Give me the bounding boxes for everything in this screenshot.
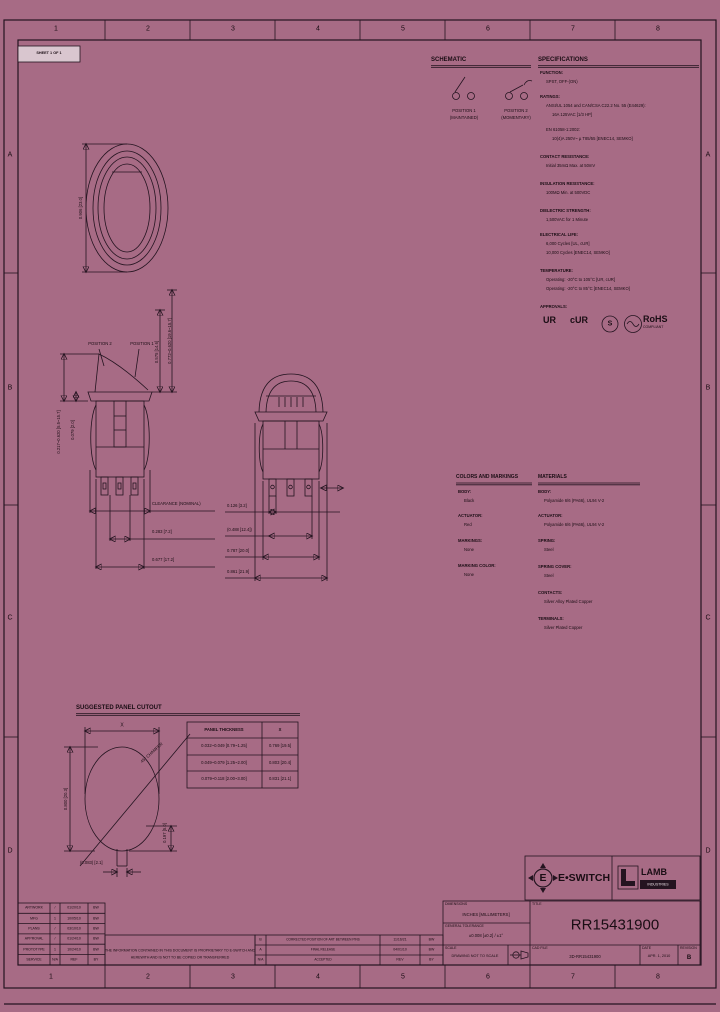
footer-cell: PROTOTYPE — [23, 948, 45, 952]
titleblock-header: SCALE — [445, 947, 456, 951]
titleblock-header: GENERAL TOLERANCE — [445, 925, 484, 929]
grid-col-label: 3 — [231, 974, 235, 981]
titleblock-header: REVISION — [680, 947, 697, 951]
spec-line: Operating: -20°C to 105°C [UR, cUR] — [546, 278, 615, 282]
rev-cell: BW — [429, 948, 435, 952]
grid-col-label: 8 — [656, 974, 660, 981]
cutout-table-cell: 0.079~0.118 [2.00~3.00] — [201, 777, 246, 781]
eswitch-logo-e: E — [539, 873, 546, 884]
titleblock-value: DRAWING NOT TO SCALE — [452, 955, 499, 959]
footer-cell: MFG — [30, 917, 38, 921]
lamb-logo-text: LAMB — [641, 868, 667, 877]
materials-value: Silver Alloy Plated Copper — [544, 600, 592, 604]
titleblock-value: APR. 1, 2010 — [648, 955, 671, 959]
footer-cell: SERVICE — [26, 958, 41, 962]
rev-cell: B — [259, 938, 261, 942]
front-view-drawing — [82, 144, 168, 272]
colors-header: ACTUATOR: — [458, 514, 483, 518]
footer-cell: 10/05/10 — [67, 917, 81, 921]
grid-col-label: 2 — [146, 26, 150, 33]
materials-value: Silver Plated Copper — [544, 626, 582, 630]
rev-cell: FINAL RELEASE — [311, 948, 336, 951]
spec-line: 100MΩ Min. at 500VDC — [546, 191, 590, 195]
colors-title: COLORS AND MARKINGS — [456, 475, 518, 480]
spec-line: 10(4)A 250V~ µ T85/55 [ENEC14, SEMKO] — [552, 137, 633, 141]
grid-row-label: C — [705, 615, 710, 622]
spec-header: TEMPERATURE: — [540, 269, 573, 273]
materials-value: Steel — [544, 548, 554, 552]
revision-value: B — [687, 955, 691, 961]
side-view-2-drawing — [255, 374, 343, 496]
titleblock-header: DATE — [642, 947, 651, 951]
dim-label: CLEARANCE (NOMINAL) — [152, 502, 201, 506]
materials-title: MATERIALS — [538, 475, 567, 480]
spec-header: ELECTRICAL LIFE: — [540, 233, 578, 237]
footer-cell: BW — [93, 917, 99, 921]
rev-cell: CORRECTED POSITION OF ART BETWEEN PINS — [286, 938, 360, 941]
materials-header: CONTACTS: — [538, 591, 562, 595]
spec-header: APPROVALS: — [540, 305, 567, 309]
specs-title: SPECIFICATIONS — [538, 57, 588, 63]
grid-col-label: 6 — [486, 974, 490, 981]
grid-col-label: 2 — [146, 974, 150, 981]
footer-cell: 03/10/10 — [67, 927, 81, 931]
footer-cell: 1 — [54, 917, 56, 921]
titleblock-value: 3D-RR15431900 — [569, 955, 600, 959]
border-frame — [4, 20, 716, 1004]
dim-label: (0.083) [2.1] — [80, 861, 103, 865]
section-title-underlines — [76, 66, 699, 716]
dim-label: 0.217~0.620 [5.5~15.7] — [57, 410, 61, 453]
dim-label: 0.861 [21.9] — [227, 570, 249, 574]
spec-line: SPST, OFF-(ON) — [546, 80, 578, 84]
spec-line: Initial 35mΩ Max. at 50mV — [546, 164, 595, 168]
rev-cell: A — [259, 948, 261, 952]
rev-cell: N/A — [258, 958, 264, 962]
footer-cell: BW — [93, 948, 99, 952]
spec-line: 6,000 Cycles [UL, cUR] — [546, 242, 590, 246]
rev-cell: 04/01/10 — [393, 948, 407, 952]
grid-row-label: D — [705, 848, 710, 855]
footer-cell: N/A — [52, 958, 58, 962]
colors-header: MARKINGS: — [458, 539, 482, 543]
dim-label: 0.575 [14.6] — [155, 341, 159, 363]
footer-cell: BW — [93, 927, 99, 931]
dim-label: 0.283 [7.2] — [152, 530, 172, 534]
rev-cell: BW — [429, 938, 435, 942]
position-2-sub: (MOMENTARY) — [501, 116, 531, 120]
grid-row-label: A — [8, 152, 13, 159]
drawing-linework — [0, 0, 720, 1012]
spec-header: DIELECTRIC STRENGTH: — [540, 209, 591, 213]
spec-line: 10,000 Cycles [ENEC14, SEMKO] — [546, 251, 610, 255]
dim-label: 0.197 [5.0] — [163, 823, 167, 843]
lamb-logo-sub: INDUSTRIES — [647, 883, 668, 887]
spec-header: FUNCTION: — [540, 71, 563, 75]
rev-cell: 11/16/21 — [393, 938, 406, 942]
grid-col-label: 5 — [401, 26, 405, 33]
titleblock-header: CAD FILE — [532, 947, 548, 951]
grid-col-label: 3 — [231, 26, 235, 33]
footer-cell: BW — [93, 937, 99, 941]
eswitch-logo-text: E•SWITCH — [558, 873, 610, 884]
grid-col-label: 7 — [571, 974, 575, 981]
footer-cell: 01/20/10 — [67, 906, 81, 910]
footer-cell: BW — [93, 906, 99, 910]
dim-label: 0.800 [20.3] — [64, 788, 68, 810]
materials-header: ACTUATOR: — [538, 514, 563, 518]
cutout-table-cell: 0.032~0.049 [0.79~1.25] — [201, 744, 247, 748]
footer-cell: / — [55, 906, 56, 910]
side-view-1-drawing — [60, 290, 177, 495]
dim-label: 0.787 [20.0] — [227, 549, 249, 553]
semko-icon: S — [608, 321, 613, 328]
position-1-callout: POSITION 1 — [130, 342, 154, 346]
footer-cell: ARTWORK — [25, 906, 43, 910]
cutout-table-cell: 0.803 [20.4] — [269, 761, 291, 765]
cul-recognized-icon: cUR — [570, 316, 588, 325]
grid-row-label: B — [8, 385, 13, 392]
grid-col-label: 6 — [486, 26, 490, 33]
spec-line: Operating: -20°C to 85°C [ENEC14, SEMKO] — [546, 287, 630, 291]
materials-value: Polyamide 6/6 (PA66), UL94 V-2 — [544, 499, 604, 503]
titleblock-value: ±0.008 [±0.2] / ±1° — [469, 934, 503, 938]
materials-header: TERMINALS: — [538, 617, 564, 621]
proprietary-note: HEREWITH AND IS NOT TO BE COPIED OR TRAN… — [131, 956, 230, 960]
cutout-table-cell: 0.049~0.079 [1.25~2.00] — [201, 761, 247, 765]
position-2-label: POSITION 2 — [504, 109, 528, 113]
footer-cell: BY — [94, 958, 99, 962]
engineering-drawing-sheet: 1 2 3 4 5 6 7 8 1 2 3 4 5 6 7 8 A B C D … — [0, 0, 720, 1012]
colors-value: Red — [464, 523, 472, 527]
grid-col-label: 5 — [401, 974, 405, 981]
side-view-1-callout-lines — [90, 470, 215, 569]
dim-label: 0.677 [17.2] — [152, 558, 174, 562]
proprietary-note: THE INFORMATION CONTAINED IN THIS DOCUME… — [105, 949, 255, 953]
footer-cell: 10/24/10 — [67, 948, 81, 952]
materials-header: SPRING COVER: — [538, 565, 572, 569]
materials-header: BODY: — [538, 490, 551, 494]
spec-header: RATINGS: — [540, 95, 560, 99]
position-1-sub: (MAINTAINED) — [450, 116, 478, 120]
footer-cell: 1 — [54, 948, 56, 952]
colors-value: None — [464, 573, 474, 577]
footer-cell: / — [55, 937, 56, 941]
rohs-icon: RoHS — [643, 315, 668, 324]
dim-label: 0.772~0.620 [19.6~15.7] — [168, 318, 172, 364]
grid-row-label: C — [7, 615, 12, 622]
panel-cutout-drawing — [64, 727, 190, 877]
sheet-number-label: SHEET 1 OF 1 — [36, 52, 61, 56]
grid-col-label: 4 — [316, 974, 320, 981]
rohs-compliant-label: COMPLIANT — [643, 326, 663, 330]
spec-header: CONTACT RESISTANCE: — [540, 155, 589, 159]
spec-line: 1,500VAC for 1 Minute — [546, 218, 588, 222]
ul-recognized-icon: UR — [543, 316, 556, 325]
dim-label: 0.126 [3.2] — [227, 504, 247, 508]
position-1-label: POSITION 1 — [452, 109, 476, 113]
dim-label: (0.488 [12.4]) — [227, 528, 252, 532]
colors-header: MARKING COLOR: — [458, 564, 496, 568]
cutout-table-header: PANEL THICKNESS — [204, 728, 243, 732]
rev-cell: BY — [429, 958, 434, 962]
colors-value: Black — [464, 499, 474, 503]
materials-header: SPRING: — [538, 539, 555, 543]
footer-cell: REF — [71, 958, 78, 962]
dim-label: 0.906 [23.0] — [79, 197, 83, 219]
grid-col-label: 4 — [316, 26, 320, 33]
grid-col-label: 1 — [49, 974, 53, 981]
dim-label: X — [120, 724, 123, 729]
spec-line: 16A 125VAC [1/3 HP] — [552, 113, 592, 117]
schematic-symbols — [453, 77, 533, 100]
spec-header: INSULATION RESISTANCE: — [540, 182, 595, 186]
schematic-title: SCHEMATIC — [431, 57, 466, 63]
materials-value: Polyamide 6/6 (PA66), UL94 V-2 — [544, 523, 604, 527]
grid-col-label: 1 — [54, 26, 58, 33]
grid-row-label: D — [7, 848, 12, 855]
third-angle-projection-icon — [510, 951, 528, 959]
rev-cell: ACCEPTED — [314, 958, 331, 961]
dim-label: 0.079 [2.0] — [71, 420, 75, 440]
titleblock-header: DIMENSIONS — [445, 903, 467, 907]
footer-cell: APPROVAL — [25, 937, 44, 941]
colors-header: BODY: — [458, 490, 471, 494]
cutout-title: SUGGESTED PANEL CUTOUT — [76, 705, 162, 711]
titleblock-value: INCHES [MILLIMETERS] — [462, 913, 509, 917]
cutout-table-cell: 0.831 [21.1] — [269, 777, 291, 781]
position-2-callout: POSITION 2 — [88, 342, 112, 346]
footer-cell: / — [55, 927, 56, 931]
grid-row-label: A — [706, 152, 711, 159]
colors-value: None — [464, 548, 474, 552]
footer-cell: PLANS — [28, 927, 39, 931]
cutout-table-cell: 0.769 [19.5] — [269, 744, 291, 748]
grid-col-label: 8 — [656, 26, 660, 33]
footer-cell: 01/24/10 — [67, 937, 81, 941]
part-number: RR15431900 — [571, 918, 659, 933]
spec-line: EN 61058-1:2002: — [546, 128, 580, 132]
spec-line: ANSI/UL 1054 and CAN/CSA C22.2 No. 55 (E… — [546, 104, 646, 108]
rev-cell: REV — [396, 958, 403, 962]
grid-col-label: 7 — [571, 26, 575, 33]
materials-value: Steel — [544, 574, 554, 578]
titleblock-header: TITLE — [532, 903, 542, 907]
grid-row-label: B — [706, 385, 711, 392]
cutout-table-header: X — [279, 728, 282, 732]
